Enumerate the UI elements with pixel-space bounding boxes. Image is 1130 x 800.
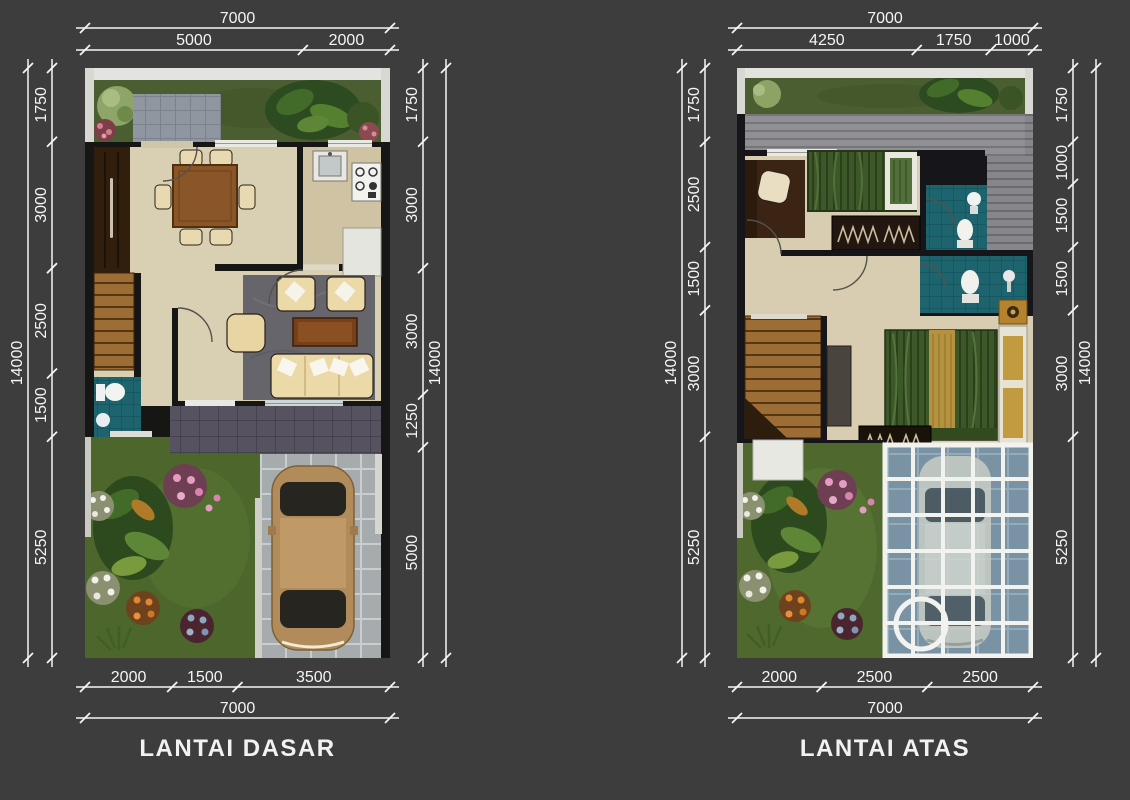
dim-label: 1750 [686, 87, 703, 123]
dim-label: 1750 [1054, 87, 1071, 123]
staircase [745, 314, 827, 440]
armchair [277, 277, 315, 311]
desk-chair [756, 169, 792, 205]
dim-label: 2000 [761, 669, 797, 686]
cabinet [94, 147, 130, 273]
dim-label: 3000 [686, 356, 703, 392]
dim-label: 1500 [1054, 261, 1071, 297]
dim-label: 2500 [857, 669, 893, 686]
dim-label: 7000 [867, 700, 903, 717]
dim-label: 14000 [427, 341, 444, 386]
wardrobe [832, 216, 920, 250]
dim-label: 3000 [404, 187, 421, 223]
dim-label: 1750 [404, 87, 421, 123]
armchair [327, 277, 365, 311]
terrace [170, 406, 381, 454]
dim-label: 2500 [33, 303, 50, 339]
single-bed [807, 150, 917, 212]
sofa [271, 354, 373, 398]
dim-label: 5250 [686, 529, 703, 565]
master-bedroom [827, 300, 1033, 456]
ottoman [227, 314, 265, 352]
dim-label: 1500 [187, 669, 223, 686]
dim-label: 5000 [176, 32, 212, 49]
living-room [227, 275, 375, 400]
dim-label: 2000 [329, 32, 365, 49]
entry-porch [133, 94, 221, 142]
dim-label: 5250 [33, 529, 50, 565]
dim-label: 14000 [663, 341, 680, 386]
dim-label: 1000 [1054, 145, 1071, 181]
dim-label: 1250 [404, 403, 421, 439]
dim-label: 3000 [404, 313, 421, 349]
floor-plan-sheet: 7000500020002000150035007000140001750300… [0, 0, 1130, 800]
coffee-table [293, 318, 357, 346]
dim-label: 1500 [686, 261, 703, 297]
staircase [94, 273, 134, 370]
bedside-shelf [999, 326, 1027, 444]
hall [745, 256, 920, 316]
dim-label: 1750 [936, 32, 972, 49]
upper-floor-plan [737, 68, 1033, 658]
dim-label: 5250 [1054, 529, 1071, 565]
master-bed [885, 330, 997, 440]
dim-label: 14000 [1077, 341, 1094, 386]
car-top-view [268, 466, 358, 650]
dim-label: 3000 [33, 187, 50, 223]
dim-label: 5000 [404, 535, 421, 571]
dim-label: 3000 [1054, 356, 1071, 392]
upper-floor-title: LANTAI ATAS [737, 735, 1033, 763]
front-garden [745, 75, 1025, 114]
garden [737, 440, 883, 658]
dim-label: 2000 [111, 669, 147, 686]
dim-label: 1000 [994, 32, 1030, 49]
desk [745, 160, 805, 238]
dim-label: 2500 [962, 669, 998, 686]
dim-label: 7000 [220, 10, 256, 27]
dim-label: 7000 [220, 700, 256, 717]
outdoor-table [753, 440, 803, 480]
dim-label: 2500 [686, 177, 703, 213]
speaker [999, 300, 1027, 324]
dim-label: 4250 [809, 32, 845, 49]
bathroom-1 [926, 179, 987, 258]
dim-label: 1500 [33, 387, 50, 423]
ground-floor-title: LANTAI DASAR [85, 735, 390, 763]
ground-floor-plan [85, 68, 390, 658]
dim-label: 3500 [296, 669, 332, 686]
dim-label: 7000 [867, 10, 903, 27]
rear-garden [85, 437, 260, 658]
dim-label: 1500 [1054, 198, 1071, 234]
dim-label: 14000 [9, 341, 26, 386]
glass-canopy-carport [883, 443, 1033, 658]
dim-label: 1750 [33, 87, 50, 123]
